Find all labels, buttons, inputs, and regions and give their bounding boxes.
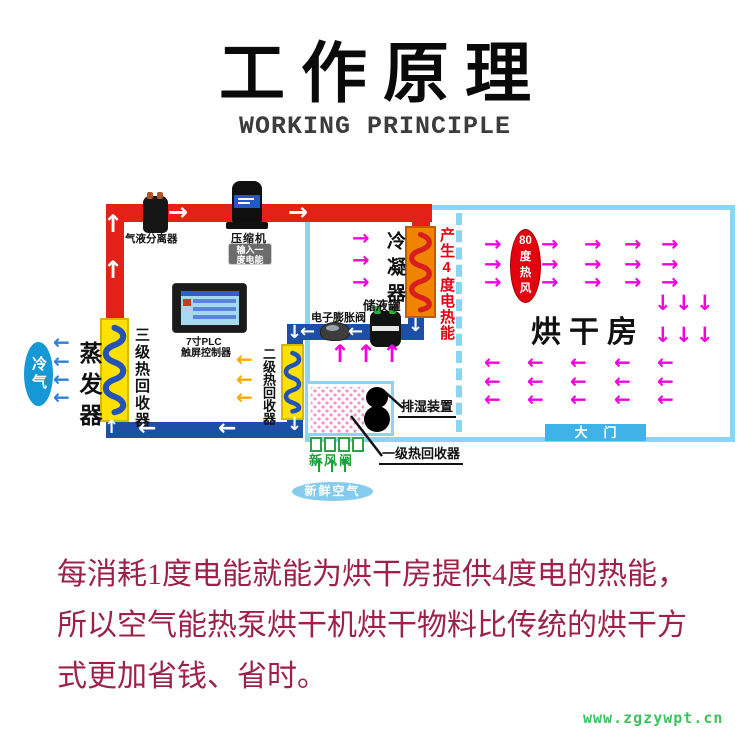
input-power-badge: 输入一 度电能 bbox=[228, 243, 272, 265]
hot-air-badge: 80 度 热 风 bbox=[510, 229, 541, 303]
dehumidifier-label: 排湿装置 bbox=[398, 396, 456, 418]
page-title: 工作原理 bbox=[0, 20, 750, 116]
stage1-recovery-label: 一级热回收器 bbox=[379, 443, 463, 465]
tank-line-pipe bbox=[295, 324, 424, 340]
compressor-icon bbox=[232, 181, 262, 223]
door-label: 大门 bbox=[545, 424, 646, 441]
cold-air-left-icon: ← bbox=[53, 351, 70, 371]
cold-air-left-icon: ← bbox=[53, 332, 70, 352]
caption-line: 每消耗1度电能就能为烘干房提供4度电的热能， bbox=[57, 549, 717, 600]
condenser-coil bbox=[405, 226, 436, 318]
cold-air-badge: 冷气 bbox=[24, 342, 53, 406]
gas-liquid-separator-icon bbox=[143, 196, 168, 233]
heat-output-note: 产生4度电热能 bbox=[436, 227, 457, 341]
hot-gas-pipe-left bbox=[106, 204, 124, 320]
evaporator-label: 蒸发器 bbox=[72, 341, 106, 434]
plc-controller-icon bbox=[172, 283, 247, 333]
drying-room-label: 烘干房 bbox=[531, 307, 645, 351]
expansion-valve-label: 电子膨胀阀 bbox=[311, 309, 366, 325]
page-subtitle: WORKING PRINCIPLE bbox=[0, 112, 750, 141]
caption-line: 式更加省钱、省时。 bbox=[57, 651, 717, 702]
fresh-air-badge: 新鲜空气 bbox=[292, 482, 373, 501]
compressor-label: 压缩机 bbox=[231, 230, 267, 246]
stage2-heat-recovery-coil bbox=[281, 344, 304, 420]
stage2-recovery-label: 二级热回收器 bbox=[259, 347, 278, 425]
dehumidifier-icon bbox=[364, 406, 390, 432]
separator-label: 气液分离器 bbox=[125, 231, 178, 246]
caption-line: 所以空气能热泵烘干机烘干物料比传统的烘干方 bbox=[57, 600, 717, 651]
watermark-url: www.zgzywpt.cn bbox=[583, 709, 723, 727]
dehumidifier-icon bbox=[366, 387, 388, 408]
stage2-exhaust-left-icon: ← bbox=[236, 349, 253, 369]
cold-air-left-icon: ← bbox=[53, 387, 70, 407]
working-principle-poster: 工作原理 WORKING PRINCIPLE 烘干房 大门 80 度 热 风 bbox=[0, 0, 750, 750]
liquid-tank-icon bbox=[370, 311, 401, 347]
cold-air-left-icon: ← bbox=[53, 369, 70, 389]
plc-label-line2: 触屏控制器 bbox=[181, 344, 231, 359]
plc-screen bbox=[180, 290, 240, 326]
stage2-exhaust-left-icon: ← bbox=[236, 369, 253, 389]
fresh-air-valve-label: 新风阀 bbox=[309, 450, 354, 469]
stage3-recovery-label: 三级热回收器 bbox=[131, 327, 152, 429]
tank-label: 储液罐 bbox=[363, 295, 401, 314]
stage1-recovery-media bbox=[311, 387, 364, 433]
stage2-exhaust-left-icon: ← bbox=[236, 387, 253, 407]
caption-text: 每消耗1度电能就能为烘干房提供4度电的热能， 所以空气能热泵烘干机烘干物料比传统… bbox=[57, 549, 717, 702]
